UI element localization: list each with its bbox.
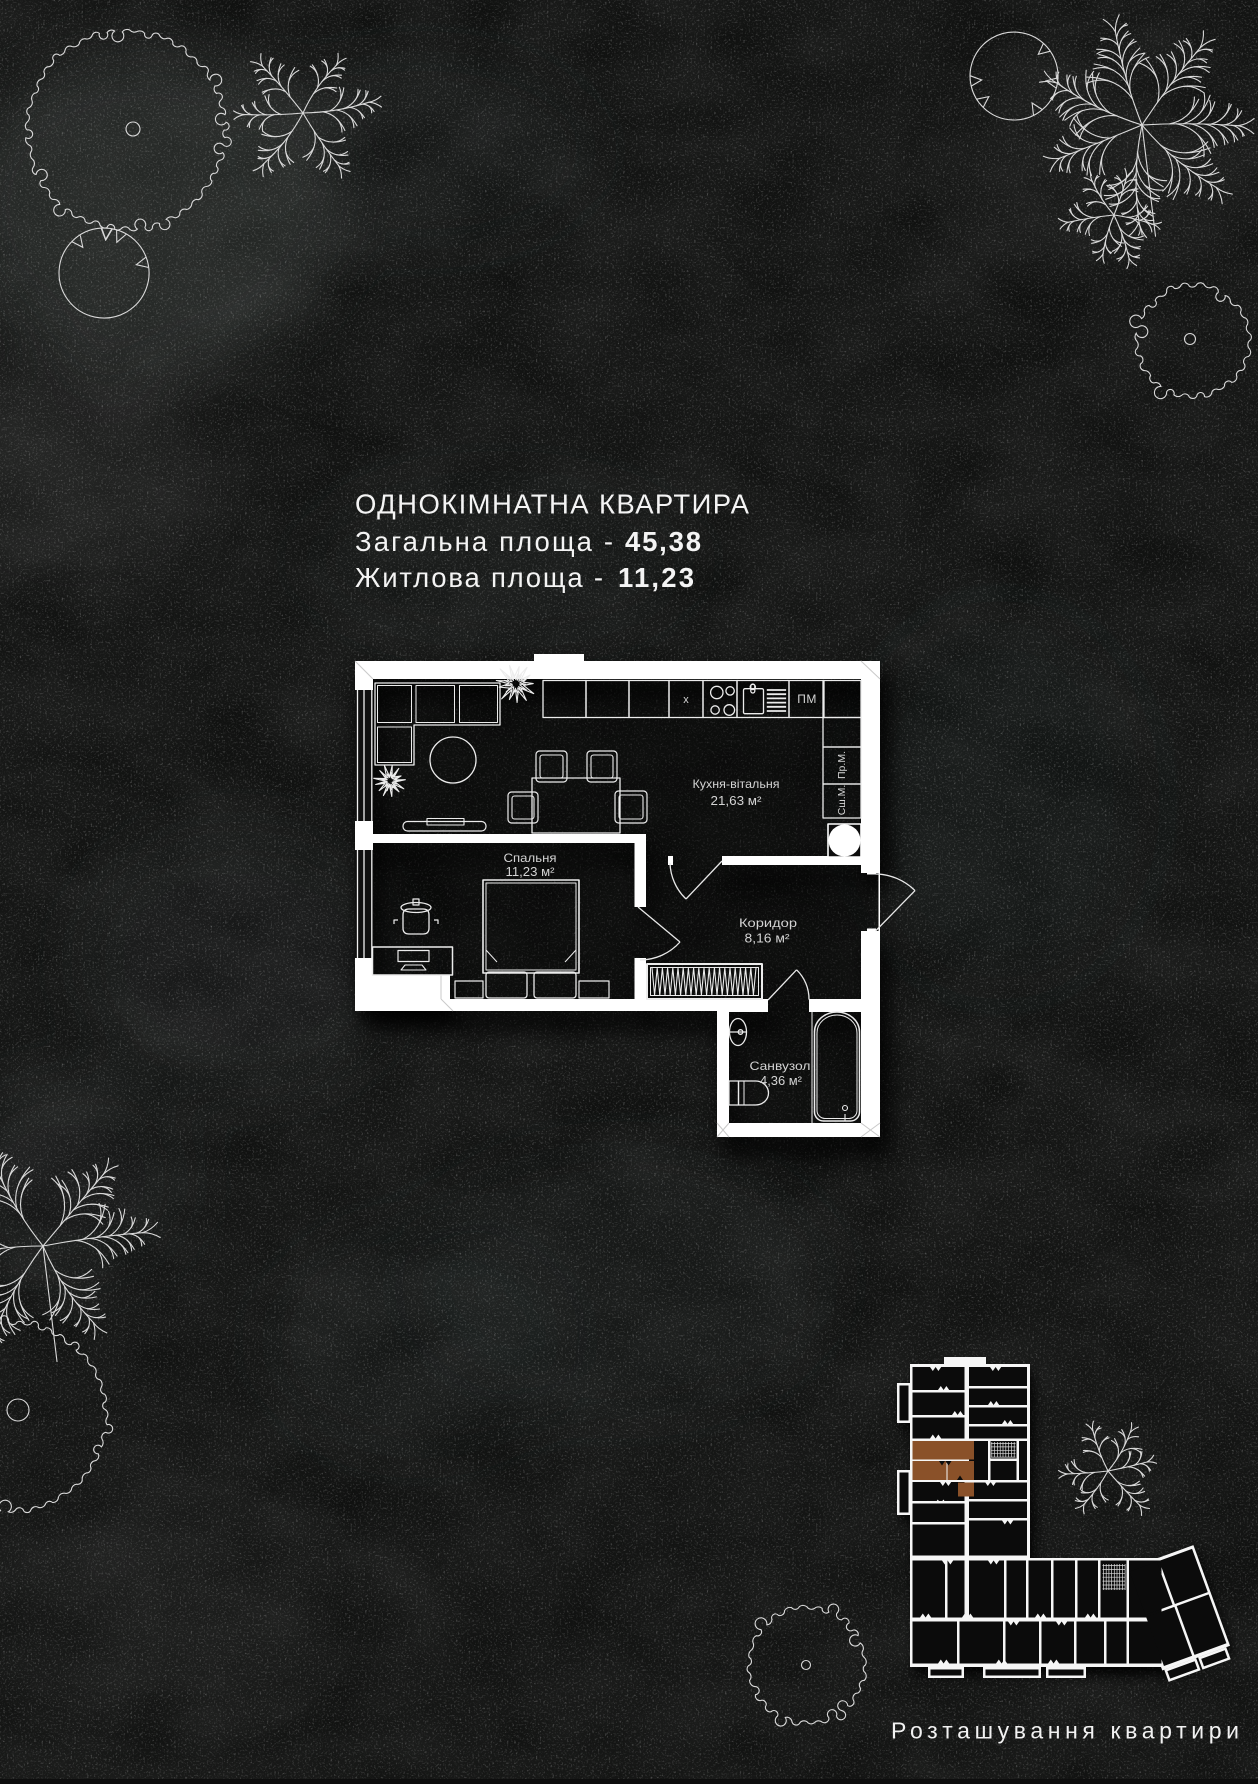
svg-text:45,38: 45,38 bbox=[625, 526, 701, 557]
svg-text:11,23: 11,23 bbox=[618, 562, 694, 593]
svg-text:Кухня-вітальня: Кухня-вітальня bbox=[693, 777, 780, 791]
svg-text:4,36 м²: 4,36 м² bbox=[760, 1073, 803, 1088]
svg-text:8,16 м²: 8,16 м² bbox=[745, 931, 791, 946]
svg-text:Коридор: Коридор bbox=[739, 916, 797, 930]
svg-text:Спальня: Спальня bbox=[504, 851, 557, 865]
svg-text:Сш.М.: Сш.М. bbox=[836, 785, 848, 816]
svg-text:x: x bbox=[683, 694, 689, 706]
svg-text:ПМ: ПМ bbox=[797, 692, 817, 706]
svg-text:Загальна площа -: Загальна площа - bbox=[355, 526, 613, 557]
svg-text:Пр.М.: Пр.М. bbox=[836, 751, 848, 779]
svg-text:11,23 м²: 11,23 м² bbox=[506, 864, 556, 879]
svg-text:21,63 м²: 21,63 м² bbox=[711, 793, 763, 808]
svg-text:Санвузол: Санвузол bbox=[750, 1059, 811, 1073]
